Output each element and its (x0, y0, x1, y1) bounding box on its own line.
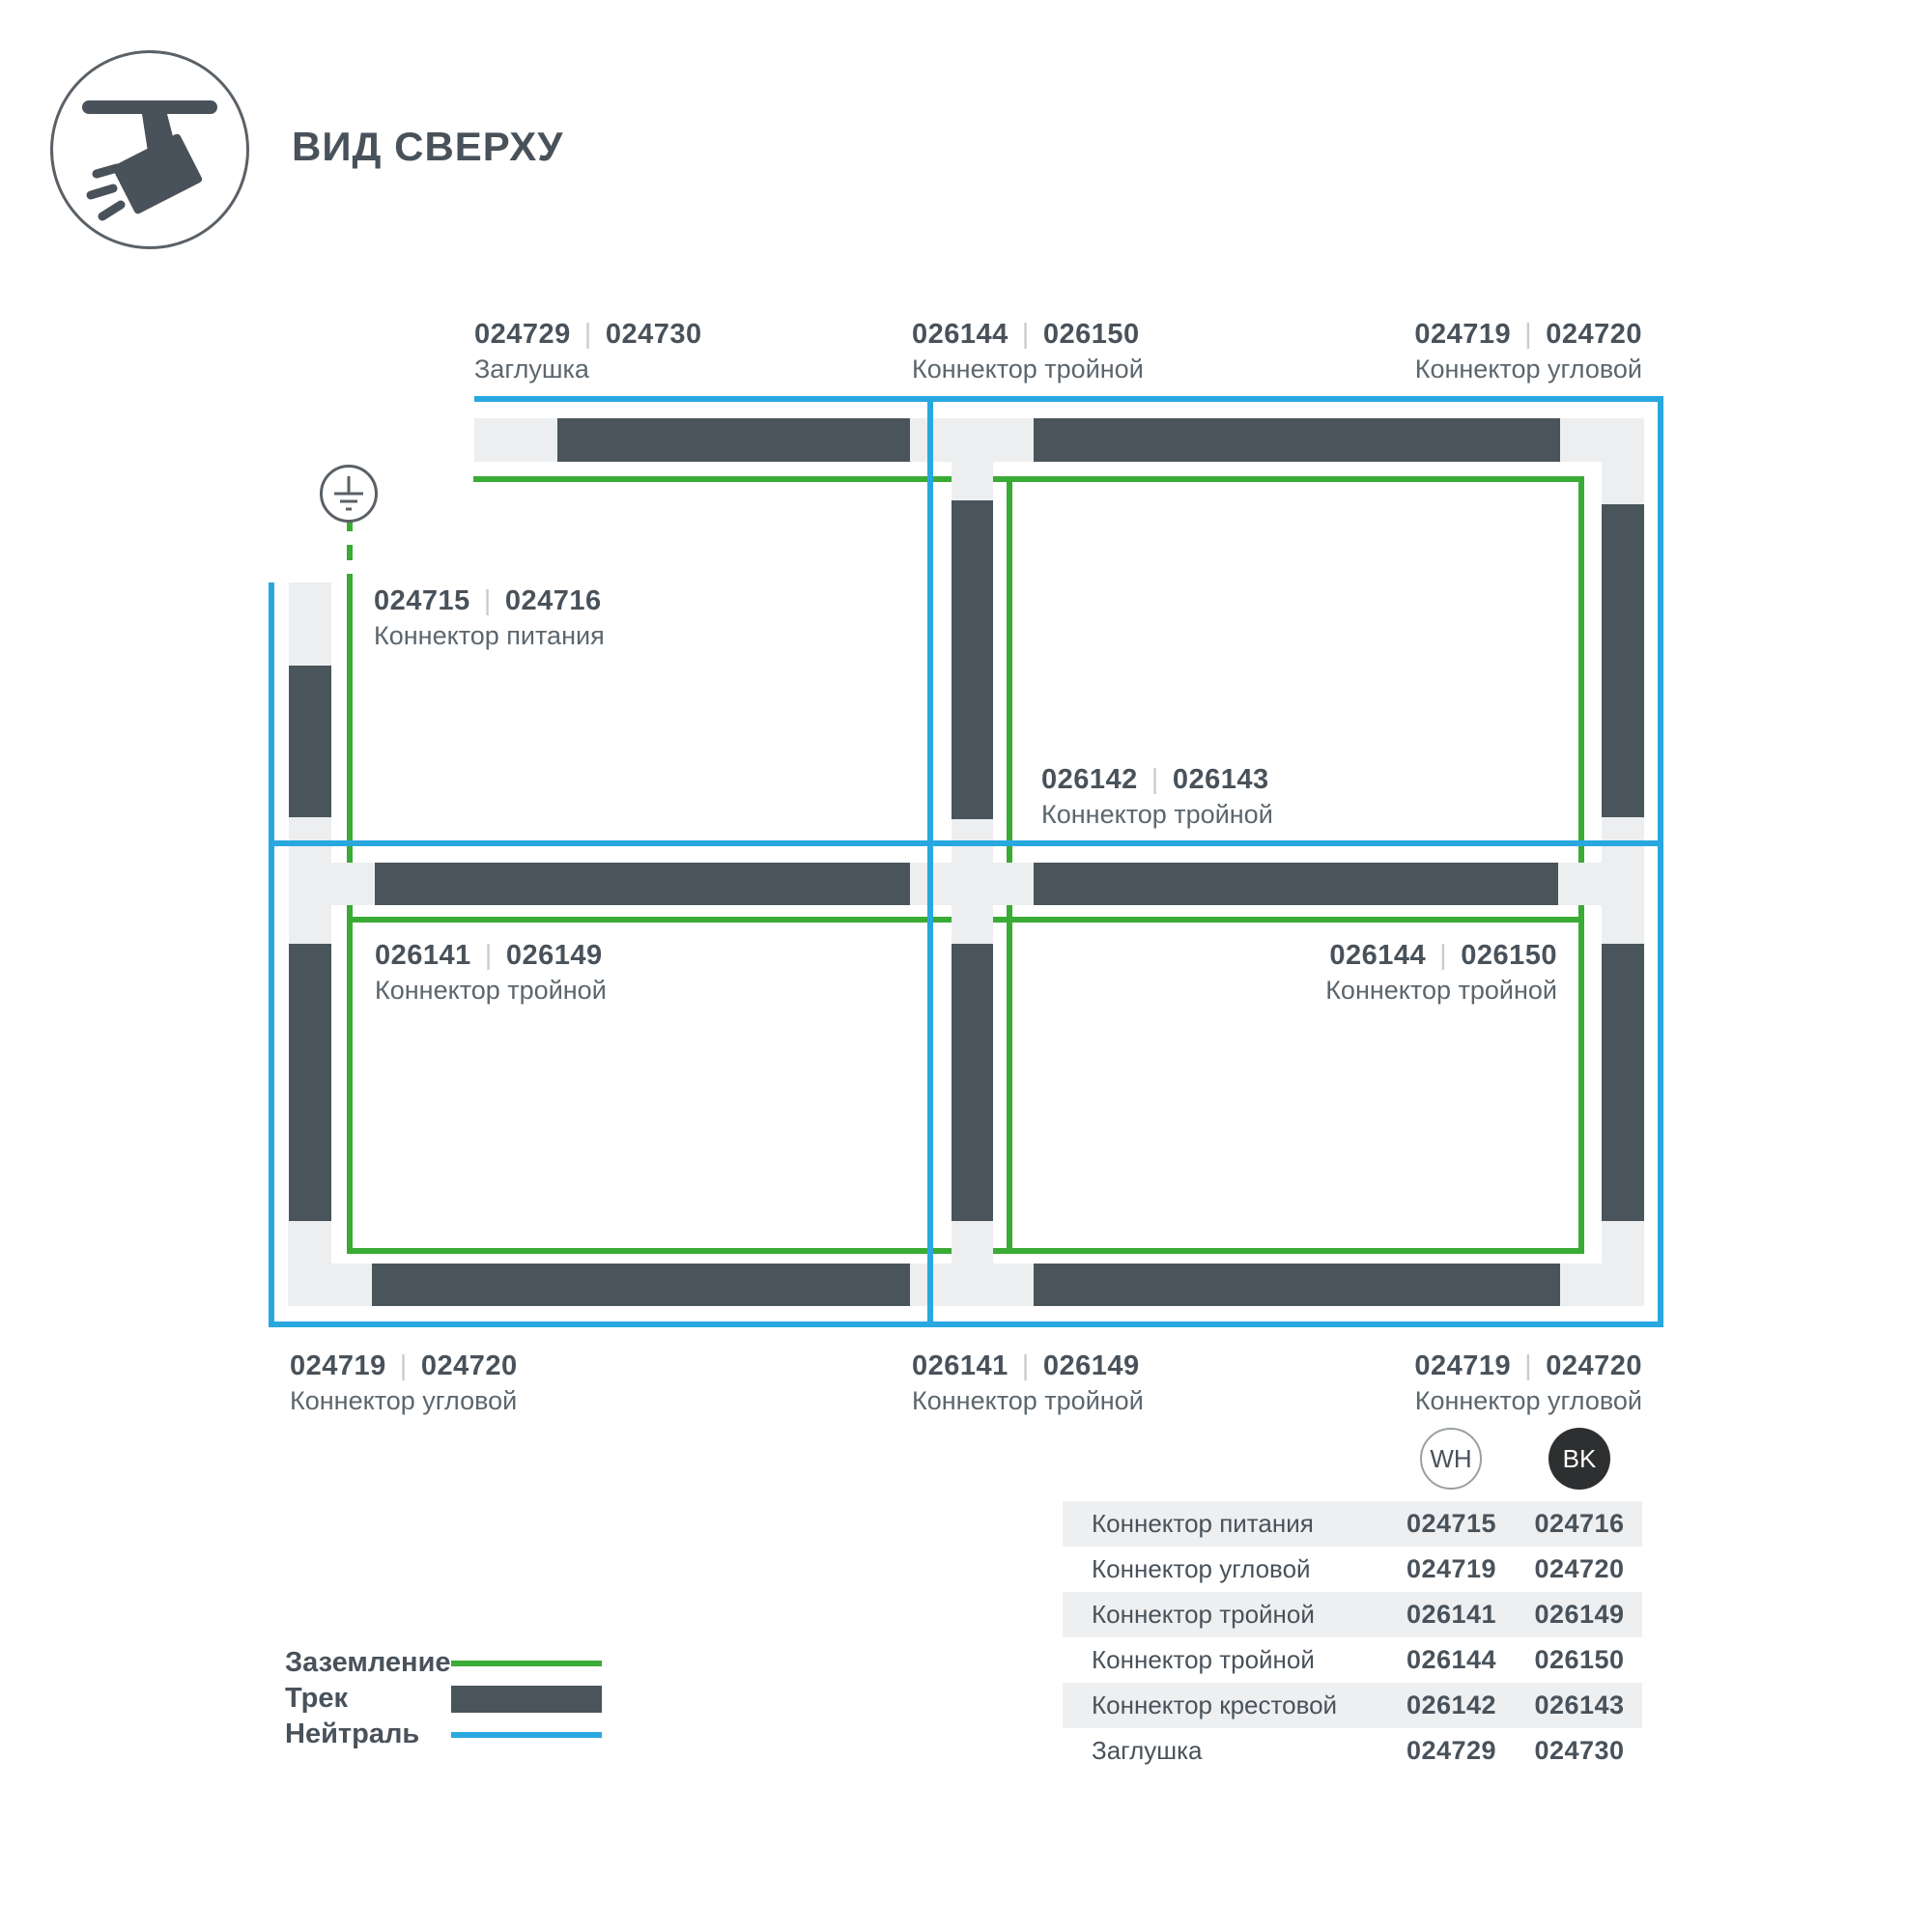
ground-line-top (473, 476, 1584, 482)
page-title: ВИД СВЕРХУ (292, 124, 563, 170)
neutral-line-center (927, 396, 933, 1327)
separator: | (386, 1350, 421, 1381)
label-power-connector: 024715|024716 Коннектор питания (374, 585, 605, 651)
neutral-line-top (474, 396, 1663, 402)
track-segment (1602, 944, 1644, 1221)
table-row: Коннектор угловой 024719 024720 (1063, 1547, 1642, 1592)
page: ВИД СВЕРХУ (0, 0, 1932, 1932)
table-row: Коннектор тройной 026141 026149 (1063, 1592, 1642, 1637)
track-segment (289, 944, 331, 1221)
separator: | (470, 585, 505, 616)
ground-symbol-icon (320, 465, 378, 523)
white-variant-badge: WH (1420, 1428, 1482, 1490)
legend-item-ground: Заземление (285, 1645, 602, 1681)
legend-item-track: Трек (285, 1681, 602, 1717)
neutral-line-right (1658, 396, 1663, 1327)
corner-connector-block (1602, 462, 1644, 504)
track-segment (557, 418, 910, 462)
track-segment (1602, 504, 1644, 817)
track-segment (1034, 418, 1560, 462)
neutral-line-middle (269, 840, 1663, 846)
triple-connector-block (952, 1221, 993, 1264)
corner-connector-block (1560, 418, 1644, 462)
label-triple-connector-bottom: 026141|026149 Коннектор тройной (912, 1350, 1144, 1416)
neutral-line-swatch (451, 1732, 602, 1738)
track-segment (1034, 863, 1558, 905)
corner-connector-block (288, 1221, 331, 1264)
label-corner-connector-bottom-left: 024719|024720 Коннектор угловой (290, 1350, 518, 1416)
label-triple-connector-mid-right: 026144|026150 Коннектор тройной (1325, 940, 1557, 1006)
black-variant-badge: BK (1548, 1428, 1610, 1490)
table-row: Коннектор тройной 026144 026150 (1063, 1637, 1642, 1683)
label-cross-connector: 026142|026143 Коннектор тройной (1041, 764, 1273, 830)
cross-connector-block (952, 905, 993, 944)
table-row: Коннектор питания 024715 024716 (1063, 1501, 1642, 1547)
separator: | (1511, 1350, 1546, 1381)
triple-connector-block (331, 863, 375, 905)
track-light-icon (50, 50, 249, 249)
corner-connector-block (288, 1264, 372, 1306)
track-segment (952, 944, 993, 1221)
table-row: Коннектор крестовой 026142 026143 (1063, 1683, 1642, 1728)
triple-connector-block (952, 462, 993, 500)
neutral-line-bottom (269, 1321, 1663, 1327)
legend-item-neutral: Нейтраль (285, 1717, 602, 1752)
track-segment (375, 863, 910, 905)
separator: | (1426, 940, 1461, 971)
separator: | (1511, 319, 1546, 350)
separator: | (571, 319, 606, 350)
table-row: Заглушка 024729 024730 (1063, 1728, 1642, 1774)
triple-connector-block (1602, 817, 1644, 944)
separator: | (1009, 319, 1043, 350)
separator: | (1009, 1350, 1043, 1381)
ground-line-feed-dashed (347, 516, 353, 585)
track-segment (1034, 1264, 1560, 1306)
label-end-cap: 024729|024730 Заглушка (474, 319, 702, 384)
end-cap-block (474, 418, 557, 462)
ground-line-left (347, 585, 353, 1254)
label-corner-connector-top-right: 024719|024720 Коннектор угловой (1414, 319, 1642, 384)
corner-connector-block (1560, 1264, 1644, 1306)
parts-table: Коннектор питания 024715 024716 Коннекто… (1063, 1501, 1642, 1774)
triple-connector-block (1558, 863, 1602, 905)
ground-line-swatch (451, 1661, 602, 1666)
end-cap-block (289, 582, 331, 666)
spotlight-glyph (53, 53, 246, 246)
track-segment (372, 1264, 910, 1306)
track-segment (952, 500, 993, 819)
separator: | (1138, 764, 1173, 795)
triple-connector-block (289, 817, 331, 944)
track-segment (289, 666, 331, 817)
track-swatch (451, 1686, 602, 1713)
neutral-line-left (269, 582, 274, 1327)
separator: | (471, 940, 506, 971)
legend: Заземление Трек Нейтраль (285, 1645, 602, 1752)
corner-connector-block (1602, 1221, 1644, 1264)
label-triple-connector-mid-left: 026141|026149 Коннектор тройной (375, 940, 607, 1006)
label-corner-connector-bottom-right: 024719|024720 Коннектор угловой (1414, 1350, 1642, 1416)
label-triple-connector-top: 026144|026150 Коннектор тройной (912, 319, 1144, 384)
